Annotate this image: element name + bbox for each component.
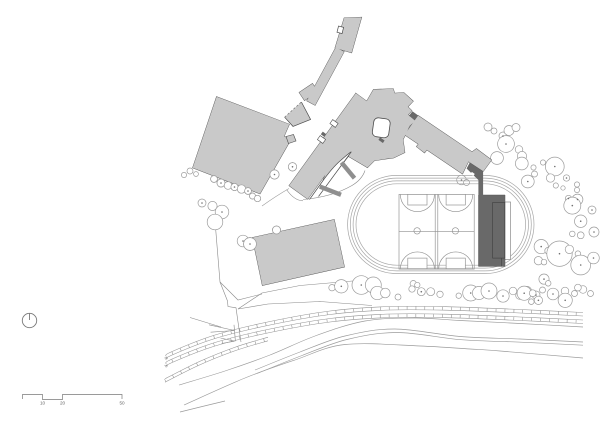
svg-text:20: 20 <box>60 401 66 406</box>
svg-text:10: 10 <box>40 401 46 406</box>
svg-text:50: 50 <box>119 401 125 406</box>
